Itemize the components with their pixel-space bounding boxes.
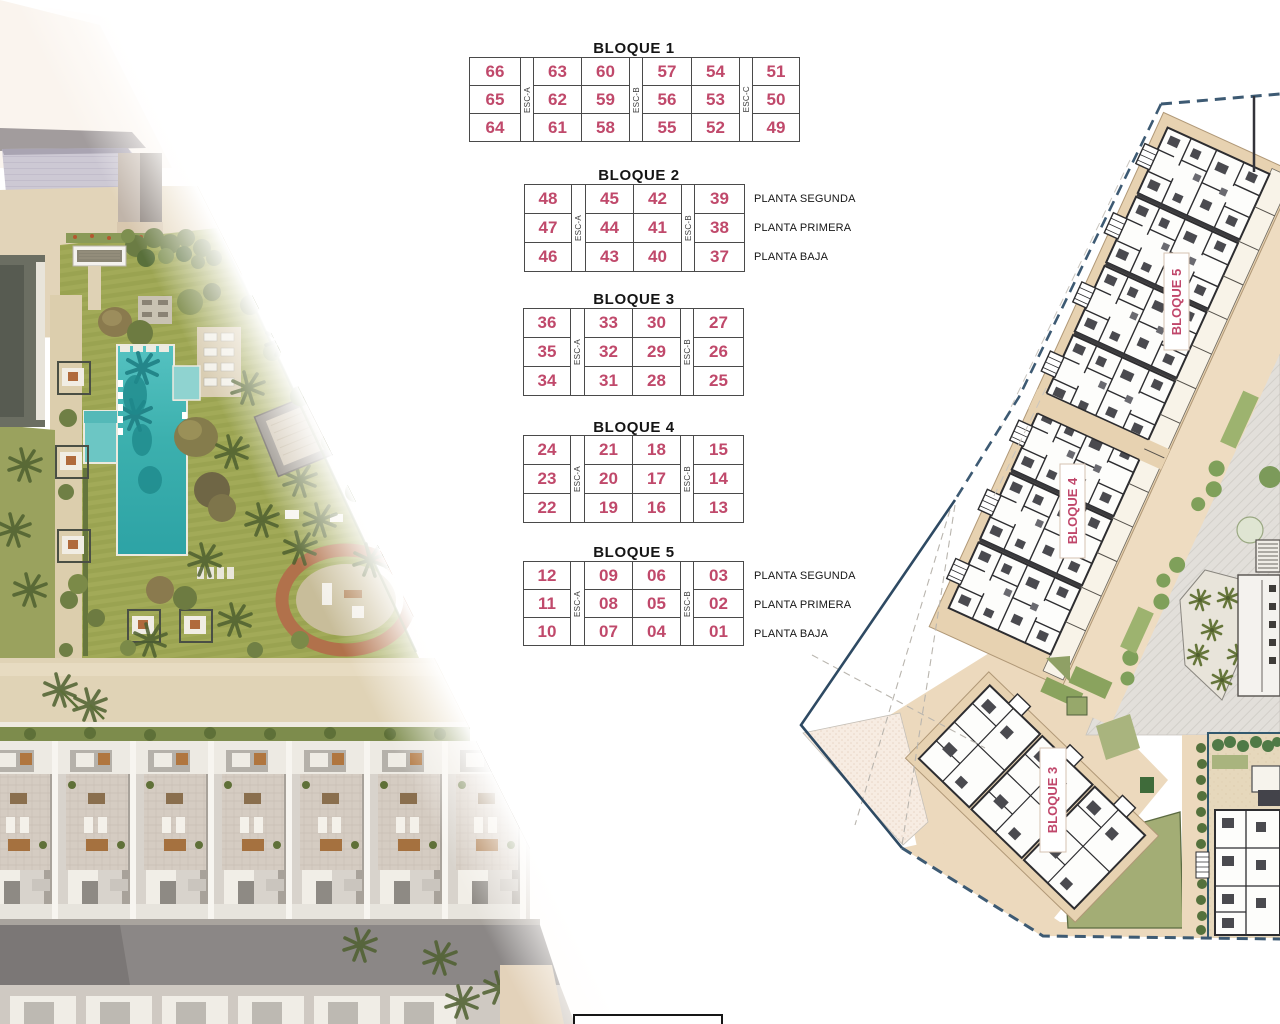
- svg-text:BLOQUE 5: BLOQUE 5: [1169, 269, 1184, 335]
- svg-text:BLOQUE 3: BLOQUE 3: [1045, 767, 1060, 833]
- svg-text:BLOQUE 4: BLOQUE 4: [1065, 477, 1080, 544]
